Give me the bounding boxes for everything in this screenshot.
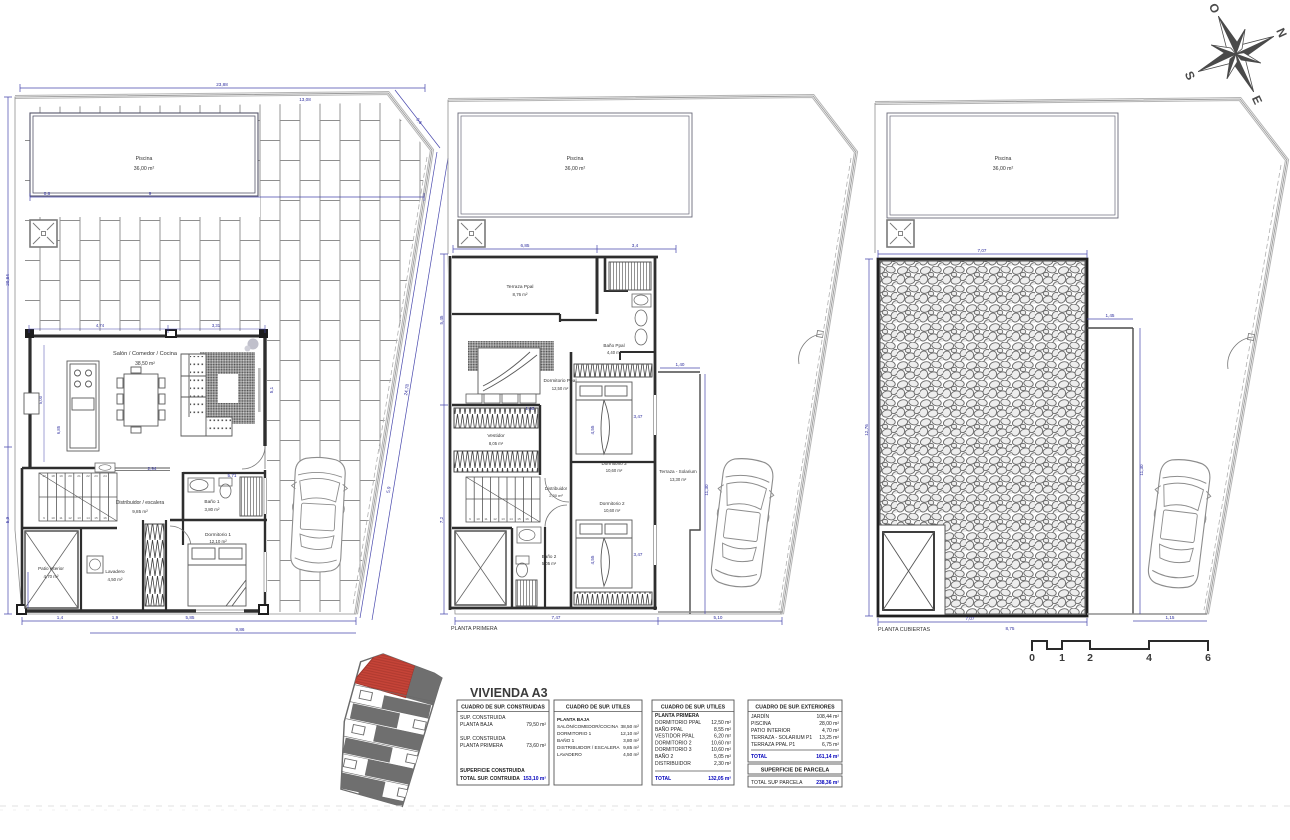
- svg-text:9: 9: [43, 516, 45, 520]
- svg-text:JARDÍN: JARDÍN: [751, 713, 769, 720]
- svg-text:0: 0: [1029, 652, 1035, 664]
- svg-text:20: 20: [68, 474, 72, 478]
- svg-text:CUADRO DE SUP. CONSTRUIDAS: CUADRO DE SUP. CONSTRUIDAS: [461, 705, 545, 711]
- svg-text:14: 14: [86, 516, 90, 520]
- svg-text:PISCINA: PISCINA: [751, 721, 772, 727]
- svg-text:1,40: 1,40: [676, 362, 685, 367]
- svg-text:18: 18: [51, 474, 55, 478]
- svg-text:PLANTA BAJA: PLANTA BAJA: [460, 722, 493, 728]
- svg-text:16: 16: [525, 517, 529, 521]
- svg-text:36,00 m²: 36,00 m²: [993, 166, 1014, 172]
- svg-text:11: 11: [484, 517, 487, 521]
- svg-text:2,30 m²: 2,30 m²: [714, 761, 731, 767]
- svg-text:38,50 m²: 38,50 m²: [135, 361, 155, 367]
- svg-text:7,47: 7,47: [552, 615, 561, 620]
- svg-text:9,85 m²: 9,85 m²: [623, 745, 639, 750]
- svg-text:12: 12: [493, 517, 497, 521]
- svg-text:TOTAL: TOTAL: [751, 754, 767, 760]
- svg-text:13,25 m²: 13,25 m²: [819, 735, 839, 741]
- svg-text:1,45: 1,45: [1106, 313, 1115, 318]
- svg-text:238,36 m²: 238,36 m²: [816, 780, 839, 786]
- svg-text:CUADRO DE SUP. UTILES: CUADRO DE SUP. UTILES: [661, 705, 726, 711]
- svg-text:Dormitorio 1: Dormitorio 1: [205, 532, 231, 538]
- svg-text:4,74: 4,74: [96, 323, 105, 328]
- svg-text:73,60 m²: 73,60 m²: [526, 743, 546, 749]
- svg-text:108,44 m²: 108,44 m²: [816, 714, 839, 720]
- svg-text:36,00 m²: 36,00 m²: [134, 166, 155, 172]
- svg-text:12,76: 12,76: [864, 424, 869, 436]
- svg-text:TERRAZA PPAL P1: TERRAZA PPAL P1: [751, 742, 795, 748]
- svg-text:28,00 m²: 28,00 m²: [819, 721, 839, 727]
- svg-text:BAÑO 1: BAÑO 1: [557, 737, 575, 743]
- svg-text:13: 13: [501, 517, 505, 521]
- svg-text:4,50 m²: 4,50 m²: [108, 577, 123, 582]
- svg-text:Piscina: Piscina: [995, 156, 1012, 162]
- svg-text:Patio interior: Patio interior: [38, 566, 64, 571]
- svg-text:Salón / Comedor / Cocina: Salón / Comedor / Cocina: [113, 351, 178, 357]
- svg-text:DISTRIBUIDOR / ESCALERA: DISTRIBUIDOR / ESCALERA: [557, 745, 620, 750]
- svg-text:1: 1: [1059, 652, 1065, 664]
- svg-text:4,70 m²: 4,70 m²: [44, 574, 59, 579]
- svg-text:DORMITORIO 3: DORMITORIO 3: [655, 747, 692, 753]
- svg-text:DORMITORIO 2: DORMITORIO 2: [655, 740, 692, 746]
- svg-text:TOTAL: TOTAL: [655, 776, 671, 782]
- svg-text:8,75: 8,75: [1006, 626, 1015, 631]
- svg-text:SUP. CONSTRUIDA: SUP. CONSTRUIDA: [460, 715, 506, 721]
- svg-text:5,45: 5,45: [439, 315, 444, 324]
- svg-text:SUPERFICIE DE PARCELA: SUPERFICIE DE PARCELA: [761, 768, 830, 774]
- svg-text:SALÓN/COMEDOR/COCINA: SALÓN/COMEDOR/COCINA: [557, 723, 619, 729]
- svg-text:SUP. CONSTRUIDA: SUP. CONSTRUIDA: [460, 736, 506, 742]
- svg-text:4,55: 4,55: [590, 555, 595, 564]
- svg-text:6,75 m²: 6,75 m²: [822, 742, 839, 748]
- svg-text:Baño 1: Baño 1: [204, 499, 220, 505]
- svg-text:9: 9: [149, 191, 152, 196]
- svg-text:1,4: 1,4: [57, 615, 64, 620]
- svg-text:TERRAZA - SOLARIUM P1: TERRAZA - SOLARIUM P1: [751, 735, 812, 741]
- svg-text:Terraza Ppal: Terraza Ppal: [507, 284, 534, 290]
- svg-text:15: 15: [94, 516, 98, 520]
- svg-text:3,47: 3,47: [634, 552, 643, 557]
- svg-text:PLANTA PRIMERA: PLANTA PRIMERA: [655, 713, 700, 719]
- svg-text:0,6: 0,6: [44, 191, 51, 196]
- svg-text:132,05 m²: 132,05 m²: [708, 776, 731, 782]
- svg-text:8,55 m²: 8,55 m²: [714, 727, 731, 733]
- svg-text:SUPERFICIE CONSTRUIDA: SUPERFICIE CONSTRUIDA: [460, 768, 525, 774]
- svg-text:12: 12: [68, 516, 72, 520]
- svg-text:23,88: 23,88: [216, 82, 228, 87]
- svg-text:19: 19: [59, 474, 63, 478]
- svg-text:DORMITORIO PPAL: DORMITORIO PPAL: [655, 720, 701, 726]
- svg-text:7,2: 7,2: [439, 516, 444, 523]
- svg-text:Dormitorio 2: Dormitorio 2: [599, 501, 624, 506]
- svg-text:12,50 m²: 12,50 m²: [711, 720, 731, 726]
- svg-text:5,9: 5,9: [5, 516, 10, 523]
- svg-text:3,80 m²: 3,80 m²: [623, 738, 639, 743]
- svg-text:5,71: 5,71: [228, 473, 237, 478]
- svg-text:12,10 m²: 12,10 m²: [621, 731, 640, 736]
- svg-text:10,60 m²: 10,60 m²: [711, 740, 731, 746]
- svg-text:12,10 m²: 12,10 m²: [209, 539, 227, 544]
- svg-text:21: 21: [77, 474, 81, 478]
- svg-text:VIVIENDA A3: VIVIENDA A3: [470, 686, 548, 700]
- svg-text:10: 10: [476, 517, 480, 521]
- svg-text:DISTRIBUIDOR: DISTRIBUIDOR: [655, 761, 691, 767]
- svg-text:4,55: 4,55: [590, 425, 595, 434]
- svg-text:13,30 m²: 13,30 m²: [670, 477, 687, 482]
- svg-text:CUADRO DE SUP. UTILES: CUADRO DE SUP. UTILES: [566, 705, 631, 711]
- svg-text:14: 14: [509, 517, 513, 521]
- svg-text:BAÑO 2: BAÑO 2: [655, 753, 674, 760]
- svg-text:Terraza - Solarium: Terraza - Solarium: [659, 469, 697, 474]
- svg-text:PLANTA PRIMERA: PLANTA PRIMERA: [451, 626, 498, 632]
- svg-text:3,31: 3,31: [212, 323, 221, 328]
- svg-text:TOTAL SUP. CONTRUIDA: TOTAL SUP. CONTRUIDA: [460, 776, 520, 782]
- svg-text:38,50 m²: 38,50 m²: [621, 724, 640, 729]
- svg-text:13,08: 13,08: [299, 97, 311, 102]
- svg-text:22: 22: [86, 474, 90, 478]
- svg-text:Baño Ppal: Baño Ppal: [603, 343, 624, 348]
- svg-text:10: 10: [51, 516, 55, 520]
- svg-text:Dormitorio 3: Dormitorio 3: [601, 461, 626, 466]
- svg-text:8,76 m²: 8,76 m²: [513, 292, 528, 297]
- svg-text:24: 24: [103, 474, 107, 478]
- svg-text:Distribuidor / escalera: Distribuidor / escalera: [116, 500, 165, 506]
- svg-text:1,93: 1,93: [526, 406, 535, 411]
- svg-text:7,07: 7,07: [978, 248, 987, 253]
- svg-text:3,47: 3,47: [634, 414, 643, 419]
- svg-text:Piscina: Piscina: [136, 156, 153, 162]
- svg-text:5,10: 5,10: [714, 615, 723, 620]
- svg-text:PLANTA PRIMERA: PLANTA PRIMERA: [460, 743, 504, 749]
- svg-text:1,15: 1,15: [1166, 615, 1175, 620]
- svg-text:Lavadero: Lavadero: [105, 569, 125, 574]
- svg-text:17: 17: [42, 474, 46, 478]
- svg-text:5,05 m²: 5,05 m²: [714, 754, 731, 760]
- svg-text:3,4: 3,4: [632, 243, 639, 248]
- svg-text:10,60 m²: 10,60 m²: [606, 468, 623, 473]
- svg-text:5,85: 5,85: [186, 615, 195, 620]
- svg-text:12,50 m²: 12,50 m²: [552, 386, 569, 391]
- svg-text:153,10 m²: 153,10 m²: [523, 776, 546, 782]
- svg-text:PLANTA CUBIERTAS: PLANTA CUBIERTAS: [878, 627, 931, 633]
- svg-text:9,86: 9,86: [236, 627, 245, 632]
- svg-text:36,00 m²: 36,00 m²: [565, 166, 586, 172]
- svg-text:9: 9: [469, 517, 471, 521]
- svg-text:BAÑO PPAL: BAÑO PPAL: [655, 726, 683, 733]
- svg-text:7,07: 7,07: [966, 616, 975, 621]
- svg-text:11: 11: [59, 516, 62, 520]
- svg-text:PLANTA BAJA: PLANTA BAJA: [557, 717, 590, 722]
- svg-text:1,9: 1,9: [112, 615, 119, 620]
- svg-text:15: 15: [517, 517, 521, 521]
- svg-text:VESTIDOR PPAL: VESTIDOR PPAL: [655, 734, 695, 740]
- svg-text:10,60 m²: 10,60 m²: [711, 747, 731, 753]
- svg-text:20,84: 20,84: [5, 274, 10, 286]
- svg-text:10,60 m²: 10,60 m²: [604, 508, 621, 513]
- svg-text:16: 16: [103, 516, 107, 520]
- svg-text:2: 2: [1087, 652, 1093, 664]
- svg-text:CUADRO DE SUP. EXTERIORES: CUADRO DE SUP. EXTERIORES: [755, 705, 835, 711]
- svg-text:2,94: 2,94: [148, 466, 157, 471]
- svg-text:DORMITORIO 1: DORMITORIO 1: [557, 731, 592, 736]
- svg-text:PATIO INTERIOR: PATIO INTERIOR: [751, 728, 791, 734]
- svg-text:4: 4: [1146, 652, 1152, 664]
- svg-text:161,14 m²: 161,14 m²: [816, 754, 839, 760]
- svg-text:6: 6: [1205, 652, 1211, 664]
- svg-text:3,80 m²: 3,80 m²: [205, 507, 220, 512]
- svg-text:5,1: 5,1: [269, 386, 274, 393]
- svg-text:Vestidor: Vestidor: [487, 433, 505, 439]
- svg-text:Piscina: Piscina: [567, 156, 584, 162]
- svg-text:6,85: 6,85: [521, 243, 530, 248]
- svg-text:11,30: 11,30: [1139, 464, 1144, 476]
- svg-text:8,05 m²: 8,05 m²: [489, 441, 504, 446]
- svg-text:4,70 m²: 4,70 m²: [822, 728, 839, 734]
- svg-text:LAVADERO: LAVADERO: [557, 752, 582, 757]
- svg-text:11,30: 11,30: [704, 484, 709, 496]
- svg-text:TOTAL SUP PARCELA: TOTAL SUP PARCELA: [751, 780, 803, 786]
- svg-text:6,85: 6,85: [56, 425, 61, 434]
- svg-text:6,20 m²: 6,20 m²: [714, 734, 731, 740]
- svg-text:9,85 m²: 9,85 m²: [132, 509, 148, 514]
- svg-text:13: 13: [77, 516, 81, 520]
- svg-text:23: 23: [94, 474, 98, 478]
- svg-text:4,50 m²: 4,50 m²: [623, 752, 639, 757]
- svg-text:79,50 m²: 79,50 m²: [526, 722, 546, 728]
